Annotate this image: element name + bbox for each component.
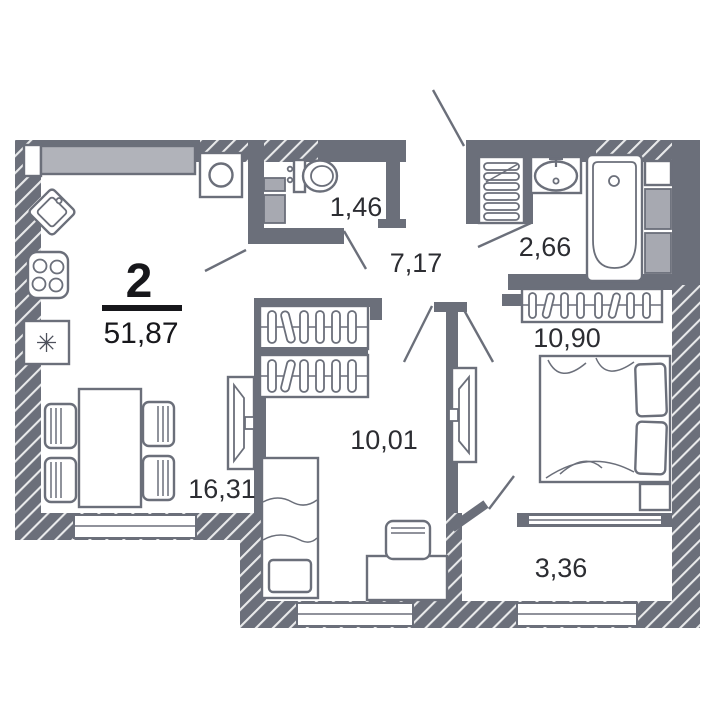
fridge: ✳ [24, 321, 69, 364]
ventilation-shaft [645, 161, 671, 273]
dining-table [79, 389, 141, 507]
window-children [297, 603, 413, 626]
chair [45, 458, 76, 502]
wardrobe-lower [260, 355, 368, 397]
room-area-toilet: 1,46 [330, 192, 383, 222]
toilet-room [264, 160, 337, 223]
wall-wc-bottom [248, 228, 344, 244]
tv-living [228, 377, 254, 469]
wall-wc-right [386, 162, 400, 222]
room-area-bedroom: 10,90 [533, 323, 601, 353]
desk [367, 556, 447, 600]
wall-right-top [672, 140, 700, 290]
wardrobe-divider [260, 347, 368, 355]
counter-end [24, 145, 41, 176]
chair [143, 402, 174, 446]
floor-plan-canvas: ✳ [0, 0, 720, 720]
room-area-children: 10,01 [350, 425, 418, 455]
floor-plan: ✳ [0, 0, 720, 720]
pillow [269, 560, 311, 592]
chair [143, 456, 174, 500]
room-area-balcony: 3,36 [535, 553, 588, 583]
rooms-count-label: 2 [126, 255, 153, 308]
built-in-wardrobe [522, 289, 662, 322]
wall-top-wc [318, 140, 406, 162]
room-area-hallway: 7,17 [390, 248, 443, 278]
shaft-duct [264, 178, 285, 191]
wardrobe-upper [260, 306, 368, 349]
wall-right-exterior [672, 285, 700, 628]
kitchen-door-swing [205, 250, 246, 271]
balcony-door-swing [489, 476, 514, 509]
wc-door-swing [344, 231, 366, 269]
stove [28, 252, 68, 298]
single-bed [262, 458, 318, 598]
bedroom-door-swing [464, 310, 493, 362]
label-divider [102, 305, 182, 311]
tv-bedroom [449, 368, 476, 462]
children-door-swing [404, 306, 432, 362]
wall-corner-piece [370, 298, 382, 320]
snowflake-icon: ✳ [36, 328, 58, 358]
nightstand [640, 484, 670, 510]
total-area-label: 51,87 [103, 317, 178, 350]
room-area-kitchen-living: 16,31 [188, 474, 256, 504]
towel-radiator [479, 157, 524, 223]
window-bedroom-balcony [528, 515, 662, 525]
room-area-bathroom: 2,66 [519, 232, 572, 262]
entrance-door-swing [433, 90, 464, 146]
washbasin [531, 157, 581, 193]
toilet [288, 160, 337, 192]
pillow [635, 363, 667, 416]
kitchen-counter [41, 146, 195, 174]
bathroom [479, 155, 671, 281]
bathtub [587, 155, 642, 281]
double-bed [540, 356, 670, 482]
window-balcony [517, 603, 637, 626]
chair [45, 404, 76, 448]
washing-machine [200, 153, 242, 197]
desk-chair [386, 521, 430, 559]
window-living [74, 515, 196, 538]
pillow [635, 421, 667, 474]
shaft-duct [264, 195, 285, 223]
